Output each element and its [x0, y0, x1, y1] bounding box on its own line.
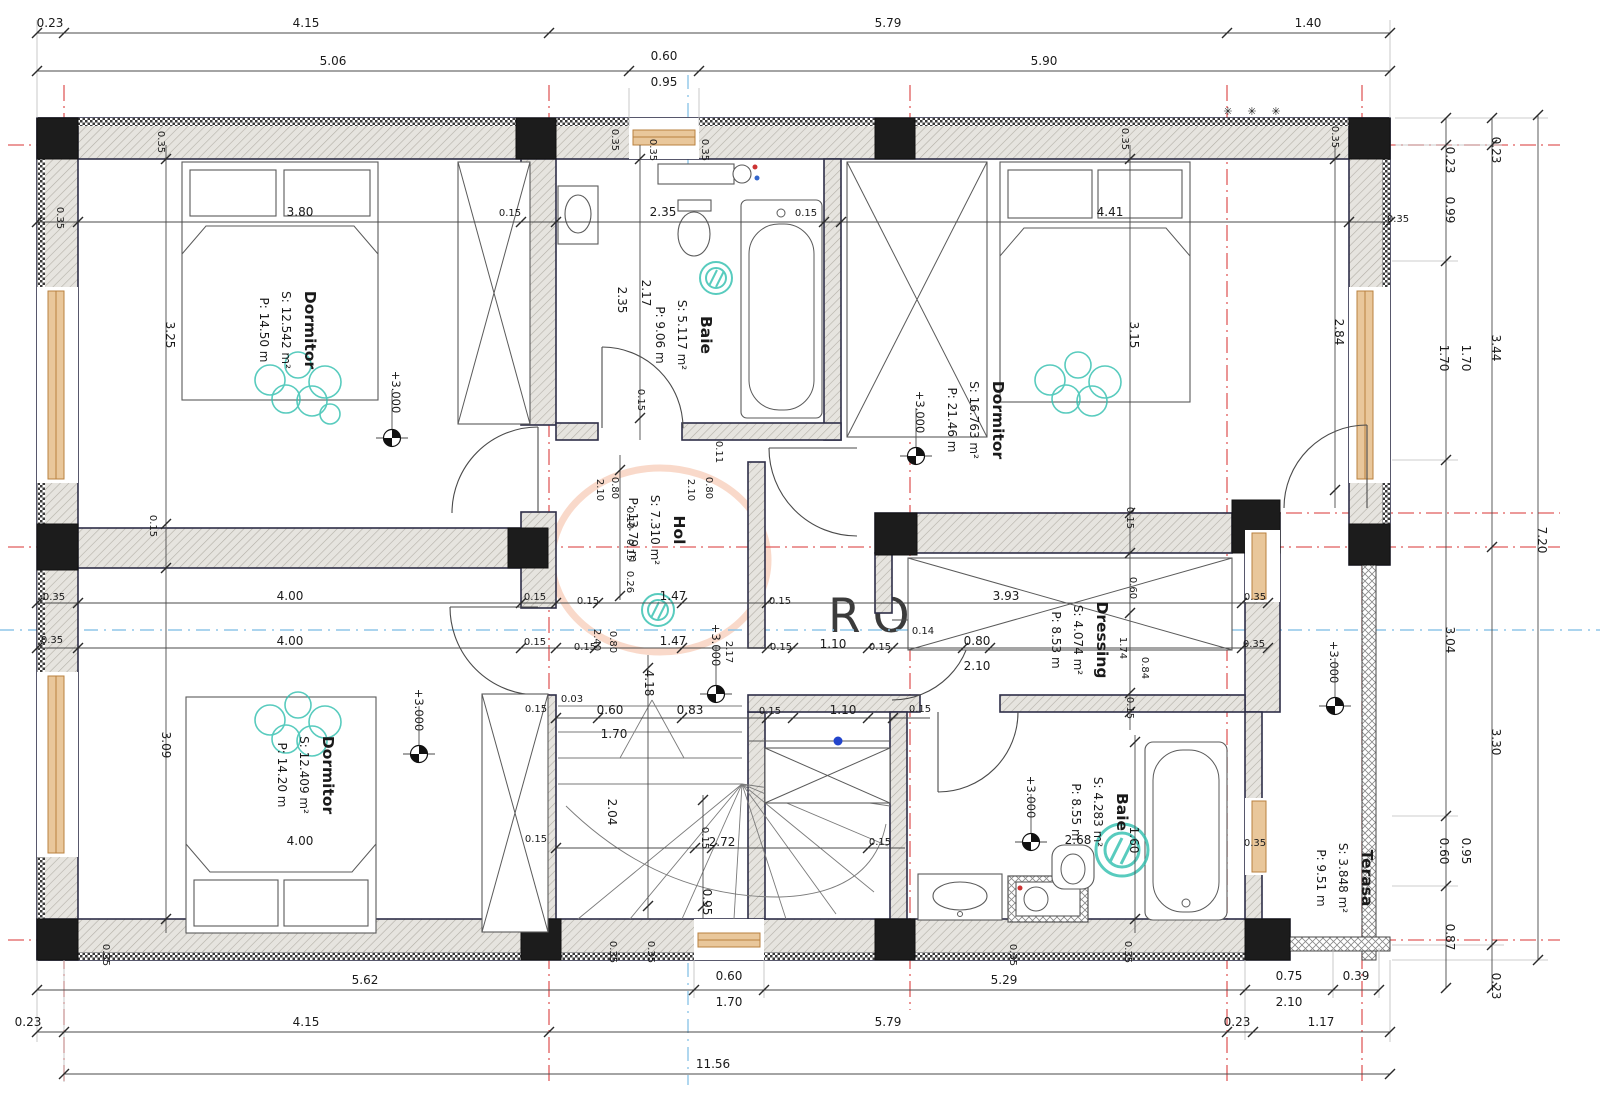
level-marker-quadrant	[708, 694, 717, 703]
dim-label: 1.70	[1437, 345, 1451, 372]
dim-label: 0.60	[1437, 838, 1451, 865]
dim-label: 5.79	[875, 16, 902, 30]
blue-dot-icon	[834, 737, 843, 746]
dim-label: 0.03	[561, 694, 583, 705]
dim-label: 0.15	[869, 837, 891, 848]
door-arc-icon	[938, 712, 1018, 792]
dim-label: 0.35	[645, 941, 656, 963]
dim-label: 0.84	[1139, 657, 1150, 679]
dim-label: 0.15	[525, 704, 547, 715]
dim-label: 0.15	[769, 596, 791, 607]
room-perimeter: P: 8.53 m	[1049, 611, 1063, 668]
floor-plan-canvas: ROMANIA	[0, 0, 1600, 1110]
bed-icon	[186, 697, 376, 933]
wardrobe-icon	[908, 558, 1232, 650]
dim-label: 4.00	[277, 634, 304, 648]
dim-label: 0.15	[1124, 697, 1135, 719]
dim-label: 0.15	[795, 208, 817, 219]
dim-label: 0.15	[524, 637, 546, 648]
dim-label: 0.23	[15, 1015, 42, 1029]
dim-label: 0.14	[912, 626, 934, 637]
room-perimeter: P: 14.50 m	[257, 298, 271, 363]
room-perimeter: P: 9.06 m	[653, 306, 667, 363]
dim-label: 3.04	[1443, 627, 1457, 654]
dim-label: 0.26	[624, 571, 635, 593]
room-name: Dormitor	[301, 291, 319, 370]
dim-label: 0.35	[607, 941, 618, 963]
dim-label: 4.15	[293, 1015, 320, 1029]
room-name: Dormitor	[989, 381, 1007, 460]
floor-plan-svg: ROMANIA	[0, 0, 1600, 1110]
dim-label: 2.84	[1332, 319, 1346, 346]
room-area: S: 4.074 m²	[1071, 605, 1085, 675]
dim-label: 2.04	[605, 799, 619, 826]
dim-label: 0.15	[525, 834, 547, 845]
dim-label: 5.79	[875, 1015, 902, 1029]
window-icon	[1349, 287, 1390, 483]
dim-label: 0.60	[716, 969, 743, 983]
dim-label: 0.35	[1119, 128, 1130, 150]
level-marker-quadrant	[392, 430, 401, 439]
dim-label: 5.29	[991, 973, 1018, 987]
room-name: Terasa	[1358, 850, 1376, 907]
dim-label: 4.00	[287, 834, 314, 848]
dim-label: 2.72	[709, 835, 736, 849]
dim-label: 5.62	[352, 973, 379, 987]
dim-label: 2.10	[594, 479, 605, 501]
dim-label: 0.60	[651, 49, 678, 63]
toilet-icon	[1052, 845, 1094, 889]
dim-label: 0.15	[577, 596, 599, 607]
room-name: Hol	[670, 516, 688, 545]
dim-label: 0.15	[524, 592, 546, 603]
dim-label: 2.10	[964, 659, 991, 673]
room-area: S: 16.763 m²	[967, 381, 981, 459]
dim-label: 0.15	[770, 642, 792, 653]
dim-label: 3.30	[1489, 729, 1503, 756]
dim-label: 1.10	[830, 703, 857, 717]
dim-label: 0.35	[100, 944, 111, 966]
asterisk-icon: ✳	[1223, 105, 1232, 118]
level-marker-quadrant	[384, 438, 393, 447]
room-name: Baie	[697, 316, 715, 354]
room-name: Dressing	[1093, 602, 1111, 679]
dim-label: 3.09	[159, 732, 173, 759]
toilet-icon	[678, 200, 711, 256]
dim-label: 0.87	[1443, 924, 1457, 951]
dim-label: 0.35	[1244, 838, 1266, 849]
level-marker-quadrant	[419, 746, 428, 755]
level-label: +3.000	[913, 391, 927, 434]
dim-label: 0.95	[651, 75, 678, 89]
sink-icon	[558, 186, 598, 244]
dim-label: 0.35	[1243, 639, 1265, 650]
level-marker-quadrant	[716, 686, 725, 695]
room-perimeter: P: 9.51 m	[1314, 849, 1328, 906]
dim-label: 2.17	[639, 280, 653, 307]
window-icon	[37, 287, 78, 483]
dim-label: 0.80	[703, 477, 714, 499]
dim-label: 0.15	[1124, 507, 1135, 529]
dim-label: 0.95	[700, 889, 714, 916]
dim-label: 0.23	[1224, 1015, 1251, 1029]
dim-label: 0.35	[1387, 214, 1409, 225]
room-perimeter: P: 8.55 m	[1069, 783, 1083, 840]
dim-label: 1.10	[820, 637, 847, 651]
bathtub-icon	[1145, 742, 1227, 920]
dim-label: 1.70	[716, 995, 743, 1009]
dim-label: 0.35	[647, 139, 658, 161]
room-area: S: 3.848 m²	[1336, 843, 1350, 913]
dim-label: 5.06	[320, 54, 347, 68]
level-marker-quadrant	[1023, 842, 1032, 851]
dim-label: 2.10	[685, 479, 696, 501]
dim-label: 4.00	[277, 589, 304, 603]
door-arc-icon	[450, 607, 538, 695]
dim-label: 0.39	[1343, 969, 1370, 983]
dim-label: 0.15	[499, 208, 521, 219]
room-perimeter: P: 21.46 m	[945, 388, 959, 453]
sink-icon	[658, 164, 760, 184]
dim-label: 0.23	[37, 16, 64, 30]
dim-label: 0.80	[964, 634, 991, 648]
dim-label: 0.15	[574, 642, 596, 653]
dim-label: 0.23	[1489, 137, 1503, 164]
dim-label: 4.18	[642, 670, 656, 697]
dim-label: 0.23	[1489, 973, 1503, 1000]
asterisk-icon: ✳	[1271, 105, 1280, 118]
bathtub-icon	[741, 200, 822, 418]
window-icon	[37, 672, 78, 857]
dim-label: 0.35	[699, 139, 710, 161]
door-arc-icon	[452, 427, 538, 513]
dim-label: 0.11	[713, 441, 724, 463]
room-perimeter: P: 13.79 m	[626, 498, 640, 563]
dim-label: 0.35	[43, 592, 65, 603]
dim-label: 0.35	[1007, 944, 1018, 966]
dim-label: 0.60	[597, 703, 624, 717]
dim-label: 3.25	[163, 322, 177, 349]
dim-label: 2.17	[723, 641, 734, 663]
room-area: S: 12.542 m²	[279, 291, 293, 369]
dim-label: 3.80	[287, 205, 314, 219]
dim-label: 3.93	[993, 589, 1020, 603]
window-icon	[629, 118, 699, 159]
dim-label: 0.35	[41, 635, 63, 646]
dim-label: 0.35	[155, 131, 166, 153]
dim-label: 4.15	[293, 16, 320, 30]
level-label: +3.000	[389, 371, 403, 414]
room-area: S: 12.409 m²	[297, 736, 311, 814]
level-marker-quadrant	[1031, 834, 1040, 843]
dim-label: 0.75	[1276, 969, 1303, 983]
dim-label: 2.10	[1276, 995, 1303, 1009]
window-icon	[1245, 798, 1280, 875]
room-area: S: 7.310 m²	[648, 495, 662, 565]
dim-label: 0.15	[759, 706, 781, 717]
dim-label: 3.15	[1127, 322, 1141, 349]
asterisk-icon: ✳	[1247, 105, 1256, 118]
dim-label: 7.20	[1535, 527, 1549, 554]
room-name: Baie	[1113, 793, 1131, 831]
dim-label: 0.15	[147, 515, 158, 537]
dim-label: 0.95	[1459, 838, 1473, 865]
wardrobe-icon	[458, 162, 530, 424]
dim-label: 5.90	[1031, 54, 1058, 68]
dim-label: 0.15	[909, 704, 931, 715]
dim-label: 11.56	[696, 1057, 730, 1071]
dim-label: 0.35	[609, 129, 620, 151]
level-marker-quadrant	[916, 448, 925, 457]
door-arc-icon	[769, 448, 857, 536]
dim-label: 0.35	[1244, 592, 1266, 603]
level-marker-quadrant	[1327, 706, 1336, 715]
room-perimeter: P: 14.20 m	[275, 743, 289, 808]
dim-label: 1.47	[660, 589, 687, 603]
sink-icon	[918, 874, 1002, 920]
dim-label: 2.35	[650, 205, 677, 219]
dim-label: 1.74	[1117, 637, 1128, 659]
dim-label: 1.47	[660, 634, 687, 648]
dim-label: 3.44	[1489, 335, 1503, 362]
dim-label: 0.80	[609, 477, 620, 499]
dim-label: 0.99	[1443, 197, 1457, 224]
level-marker-quadrant	[411, 754, 420, 763]
dim-label: 0.23	[1443, 147, 1457, 174]
dim-label: 0.15	[635, 389, 646, 411]
closet-icon	[748, 737, 890, 804]
dim-label: 4.41	[1097, 205, 1124, 219]
room-name: Dormitor	[319, 736, 337, 815]
level-marker-quadrant	[908, 456, 917, 465]
dim-label: 1.70	[1459, 345, 1473, 372]
stamp-seal-icon	[700, 262, 732, 294]
dim-label: 0.80	[607, 631, 618, 653]
asterisk-marks: ✳ ✳ ✳	[1223, 105, 1280, 118]
level-label: +3.000	[1327, 641, 1341, 684]
level-marker-quadrant	[1335, 698, 1344, 707]
dim-label: 0.35	[1329, 126, 1340, 148]
dim-label: 1.70	[601, 727, 628, 741]
dim-label: 1.17	[1308, 1015, 1335, 1029]
dim-label: 0.35	[1122, 941, 1133, 963]
dim-label: 0.60	[1127, 577, 1138, 599]
dim-label: 0.35	[54, 207, 65, 229]
bed-icon	[1000, 162, 1190, 402]
room-area: S: 4.283 m²	[1091, 777, 1105, 847]
wardrobe-icon	[482, 694, 548, 932]
dim-label: 0.83	[677, 703, 704, 717]
window-icon	[694, 919, 764, 960]
room-area: S: 5.117 m²	[675, 300, 689, 370]
dim-label: 2.35	[615, 287, 629, 314]
dim-label: 1.40	[1295, 16, 1322, 30]
dim-label: 0.15	[869, 642, 891, 653]
